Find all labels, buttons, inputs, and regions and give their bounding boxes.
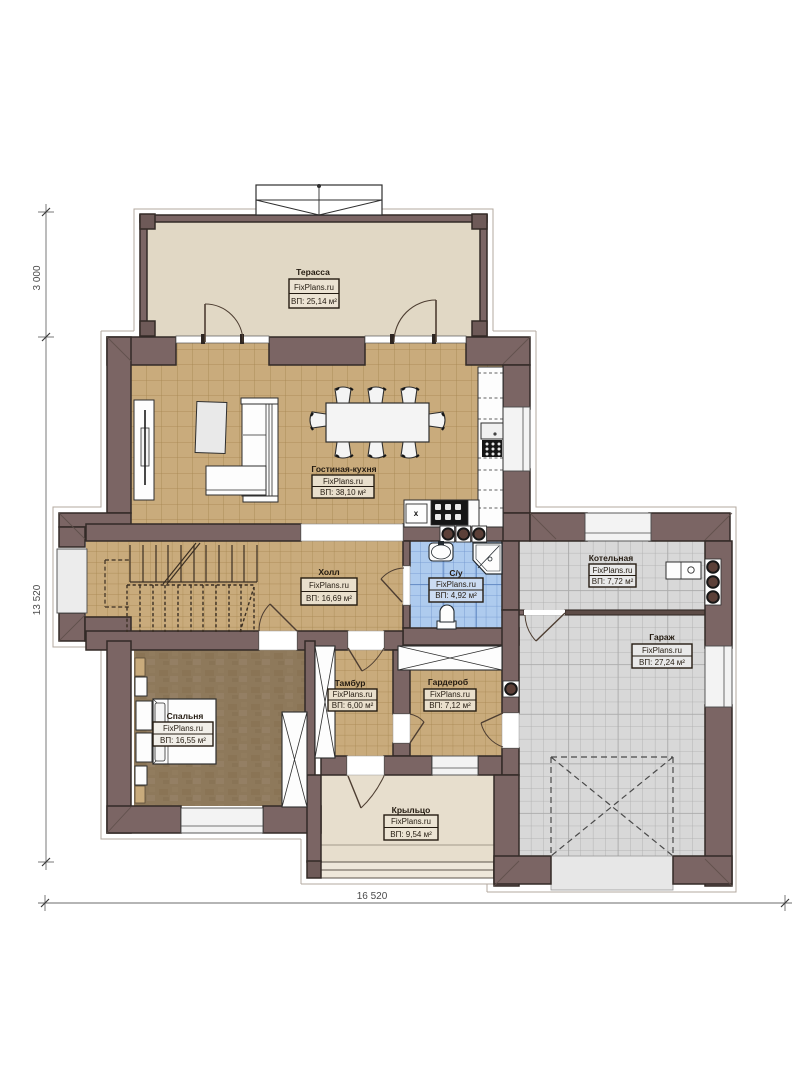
svg-text:Гардероб: Гардероб: [428, 677, 468, 687]
svg-text:FixPlans.ru: FixPlans.ru: [309, 581, 349, 590]
svg-text:FixPlans.ru: FixPlans.ru: [391, 817, 431, 826]
svg-text:FixPlans.ru: FixPlans.ru: [323, 477, 363, 486]
svg-text:Крыльцо: Крыльцо: [392, 805, 431, 815]
svg-text:Котельная: Котельная: [589, 553, 634, 563]
svg-text:16 520: 16 520: [357, 891, 388, 902]
svg-text:ВП: 4,92 м²: ВП: 4,92 м²: [435, 591, 477, 600]
svg-text:ВП: 27,24 м²: ВП: 27,24 м²: [639, 658, 685, 667]
svg-text:ВП: 7,72 м²: ВП: 7,72 м²: [592, 577, 634, 586]
svg-text:ВП: 7,12 м²: ВП: 7,12 м²: [429, 701, 471, 710]
svg-text:ВП: 38,10 м²: ВП: 38,10 м²: [320, 488, 366, 497]
svg-text:FixPlans.ru: FixPlans.ru: [294, 283, 334, 292]
svg-text:С/у: С/у: [449, 568, 463, 578]
svg-text:Спальня: Спальня: [167, 711, 204, 721]
svg-text:х: х: [414, 509, 419, 518]
svg-text:Гостиная-кухня: Гостиная-кухня: [311, 464, 376, 474]
svg-text:Терасса: Терасса: [296, 267, 330, 277]
svg-text:FixPlans.ru: FixPlans.ru: [436, 580, 476, 589]
svg-text:ВП: 16,55 м²: ВП: 16,55 м²: [160, 736, 206, 745]
svg-text:Гараж: Гараж: [649, 632, 675, 642]
svg-text:FixPlans.ru: FixPlans.ru: [592, 566, 632, 575]
svg-text:Тамбур: Тамбур: [335, 678, 366, 688]
svg-text:13 520: 13 520: [32, 584, 43, 615]
svg-text:FixPlans.ru: FixPlans.ru: [163, 724, 203, 733]
svg-text:FixPlans.ru: FixPlans.ru: [642, 646, 682, 655]
svg-text:ВП: 9,54 м²: ВП: 9,54 м²: [390, 830, 432, 839]
svg-text:FixPlans.ru: FixPlans.ru: [332, 690, 372, 699]
svg-text:FixPlans.ru: FixPlans.ru: [430, 690, 470, 699]
svg-text:ВП: 25,14 м²: ВП: 25,14 м²: [291, 297, 337, 306]
svg-text:Холл: Холл: [318, 567, 339, 577]
svg-text:ВП: 6,00 м²: ВП: 6,00 м²: [332, 701, 374, 710]
svg-text:ВП: 16,69 м²: ВП: 16,69 м²: [306, 594, 352, 603]
svg-text:3 000: 3 000: [32, 265, 43, 290]
